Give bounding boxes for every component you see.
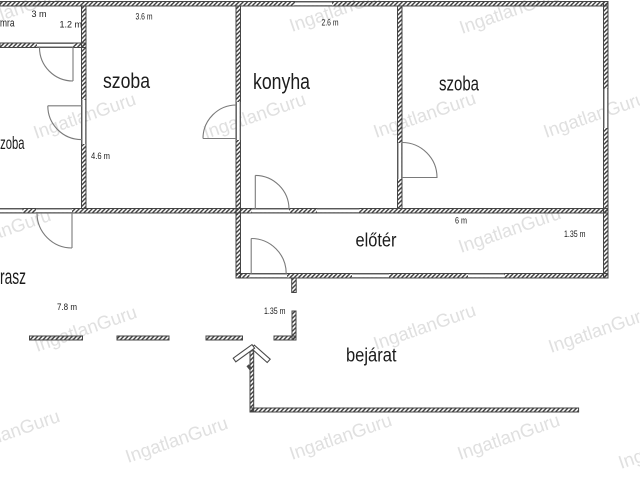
svg-text:3.6 m: 3.6 m xyxy=(136,12,153,22)
svg-text:bejárat: bejárat xyxy=(346,346,397,367)
svg-text:3 m: 3 m xyxy=(32,9,47,19)
svg-text:1.35 m: 1.35 m xyxy=(564,229,586,239)
svg-text:előtér: előtér xyxy=(356,231,398,252)
svg-text:szoba: szoba xyxy=(439,73,479,96)
svg-text:1.2 m: 1.2 m xyxy=(60,20,83,30)
svg-text:kamra: kamra xyxy=(0,18,15,30)
svg-text:1.35 m: 1.35 m xyxy=(264,306,286,316)
svg-text:terasz: terasz xyxy=(0,266,26,289)
svg-text:2.6 m: 2.6 m xyxy=(322,17,339,27)
svg-text:konyha: konyha xyxy=(253,69,311,94)
svg-text:6 m: 6 m xyxy=(455,216,467,226)
svg-text:szoba: szoba xyxy=(103,70,150,93)
svg-text:4.6 m: 4.6 m xyxy=(91,151,110,161)
svg-text:szoba: szoba xyxy=(0,133,25,153)
svg-text:7.8 m: 7.8 m xyxy=(57,302,77,312)
